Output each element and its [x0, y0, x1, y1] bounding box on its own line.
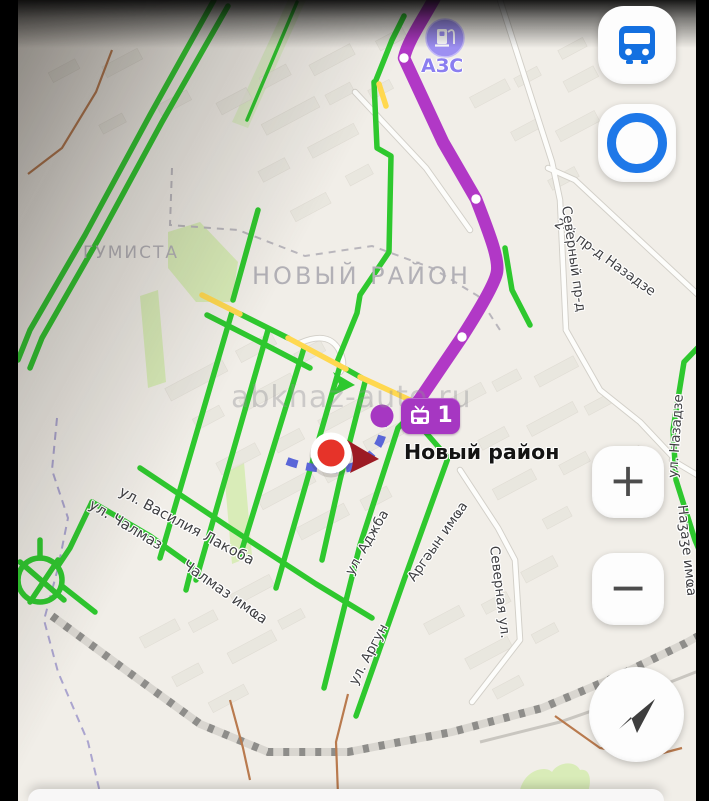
zoom-in-button[interactable]: +	[592, 446, 664, 518]
letterbox-left	[0, 0, 18, 801]
letterbox-right	[696, 0, 709, 801]
navigation-arrow-icon	[615, 695, 659, 735]
route-number: 1	[437, 405, 452, 427]
stop-point-dot	[371, 405, 394, 428]
bus-icon	[614, 24, 660, 66]
minus-icon: −	[609, 564, 648, 610]
transport-layer-button[interactable]	[598, 6, 676, 84]
plus-icon: +	[609, 457, 648, 503]
circle-icon	[607, 113, 667, 173]
trolleybus-icon	[408, 405, 432, 427]
gas-station-icon[interactable]	[426, 19, 464, 57]
transit-stop-badge[interactable]: 1	[401, 398, 460, 434]
my-location-button[interactable]	[589, 667, 684, 762]
layers-button[interactable]	[598, 104, 676, 182]
zoom-out-button[interactable]: −	[592, 553, 664, 625]
bottom-sheet-handle[interactable]	[28, 789, 664, 801]
maps-app-screen: ГУМИСТА НОВЫЙ РАЙОН 2-й пр-д Назадзе Сев…	[0, 0, 709, 801]
